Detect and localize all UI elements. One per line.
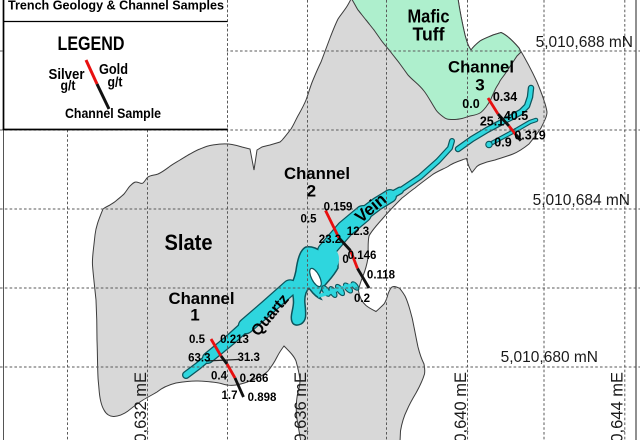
svg-text:2: 2 (307, 182, 316, 201)
svg-text:550,636 mE: 550,636 mE (292, 372, 310, 440)
svg-text:1.7: 1.7 (222, 390, 238, 402)
svg-text:25.1: 25.1 (480, 115, 504, 129)
svg-text:0.2: 0.2 (354, 293, 370, 305)
svg-text:g/t: g/t (108, 75, 123, 90)
svg-text:LEGEND: LEGEND (58, 34, 125, 55)
svg-text:63.3: 63.3 (188, 353, 210, 365)
svg-text:550,632 mE: 550,632 mE (132, 372, 150, 440)
svg-text:0.266: 0.266 (240, 373, 269, 385)
svg-text:0.4: 0.4 (211, 371, 228, 383)
svg-text:23.2: 23.2 (319, 234, 341, 246)
svg-text:0.898: 0.898 (248, 392, 277, 404)
svg-text:550,644 mE: 550,644 mE (609, 372, 627, 440)
svg-text:0.319: 0.319 (514, 129, 545, 143)
svg-text:5,010,680 mN: 5,010,680 mN (501, 349, 598, 366)
svg-text:550,640 mE: 550,640 mE (452, 372, 470, 440)
svg-text:0.34: 0.34 (493, 90, 517, 104)
svg-text:0.5: 0.5 (301, 214, 318, 226)
svg-text:Tuff: Tuff (413, 24, 446, 45)
svg-text:12.3: 12.3 (347, 226, 369, 238)
svg-text:Trench Geology & Channel Sampl: Trench Geology & Channel Samples (8, 0, 224, 13)
svg-text:40.5: 40.5 (504, 109, 528, 123)
svg-text:g/t: g/t (61, 78, 76, 93)
svg-text:0.213: 0.213 (220, 334, 249, 346)
svg-text:0.5: 0.5 (189, 334, 206, 346)
svg-text:5,010,684 mN: 5,010,684 mN (533, 192, 630, 209)
svg-text:Slate: Slate (165, 230, 213, 255)
svg-text:0.146: 0.146 (348, 250, 377, 262)
svg-text:31.3: 31.3 (238, 352, 260, 364)
svg-text:Channel Sample: Channel Sample (65, 105, 161, 121)
svg-text:Channel: Channel (169, 289, 235, 308)
svg-text:5,010,688 mN: 5,010,688 mN (536, 34, 633, 51)
svg-text:3: 3 (475, 76, 484, 95)
svg-text:0.9: 0.9 (494, 136, 511, 150)
svg-text:0.159: 0.159 (324, 202, 353, 214)
svg-text:Channel: Channel (284, 164, 350, 183)
svg-text:1: 1 (190, 306, 199, 325)
svg-text:0.0: 0.0 (462, 97, 479, 111)
svg-text:0.118: 0.118 (367, 270, 396, 282)
svg-text:Channel: Channel (448, 58, 514, 77)
